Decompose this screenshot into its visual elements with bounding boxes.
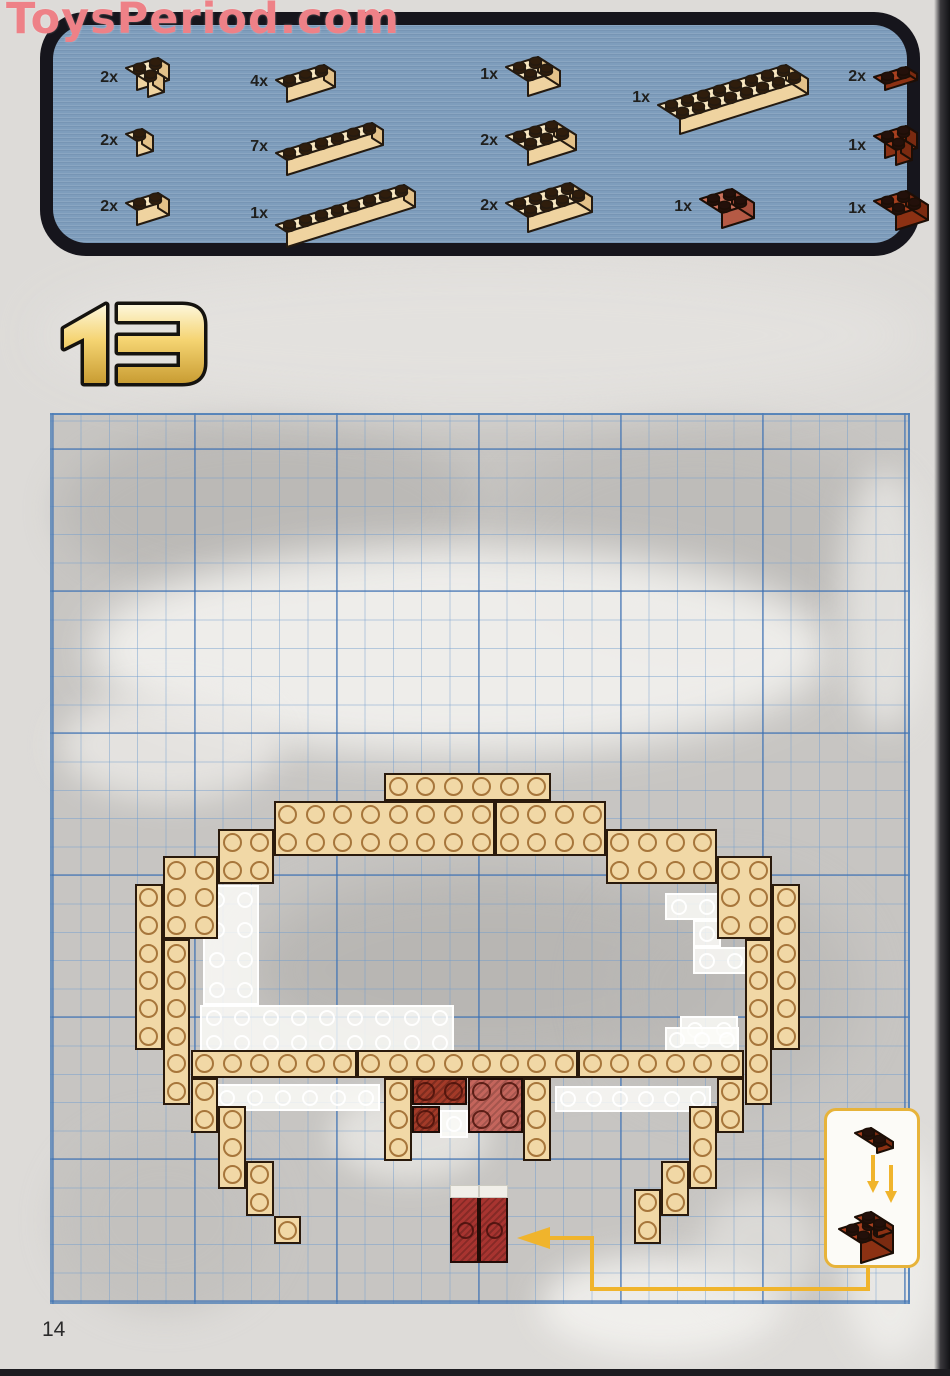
- stud: [263, 1010, 279, 1026]
- stud: [167, 1027, 186, 1046]
- red-plate-side-view: [479, 1196, 508, 1263]
- stud: [693, 1165, 712, 1184]
- part-item-brick-2x2-redbrown: 1x: [836, 182, 933, 235]
- stud: [319, 1010, 335, 1026]
- stud: [560, 1091, 576, 1107]
- stud: [250, 1165, 269, 1184]
- stud: [237, 922, 253, 938]
- stud: [250, 1054, 269, 1073]
- tan-brick-1x2: [246, 1161, 274, 1216]
- stud: [291, 1010, 307, 1026]
- stud: [527, 777, 546, 796]
- tan-brick-2x3: [717, 856, 772, 939]
- stud: [139, 888, 158, 907]
- part-brick-drawing: [123, 184, 174, 230]
- step-number-glyphs: [42, 298, 214, 398]
- part-qty-label: 1x: [620, 89, 650, 107]
- stud: [223, 861, 242, 880]
- stud: [527, 805, 546, 824]
- stud: [195, 916, 214, 935]
- stud: [693, 1138, 712, 1157]
- stud: [749, 1082, 768, 1101]
- stud: [219, 1090, 235, 1106]
- stud: [586, 1091, 602, 1107]
- tan-brick-2x3: [163, 856, 218, 939]
- stud: [555, 805, 574, 824]
- stud: [167, 861, 186, 880]
- stud: [444, 1054, 463, 1073]
- stud: [610, 833, 629, 852]
- stud: [486, 1222, 503, 1239]
- stud: [389, 833, 408, 852]
- part-brick-drawing: [871, 58, 922, 95]
- stud: [721, 1082, 740, 1101]
- stud: [167, 888, 186, 907]
- part-item-brick-2x8-tan: 1x: [620, 56, 813, 139]
- stud: [693, 861, 712, 880]
- part-brick-drawing: [123, 50, 183, 106]
- stud: [472, 1110, 491, 1129]
- stud: [167, 999, 186, 1018]
- stud: [167, 971, 186, 990]
- ghost-brick: [200, 1005, 454, 1055]
- tan-brick-2x2: [218, 829, 273, 884]
- stud: [389, 1110, 408, 1129]
- stud: [291, 1035, 307, 1051]
- plate-top-face: [450, 1185, 479, 1198]
- stud: [234, 1010, 250, 1026]
- stud: [237, 952, 253, 968]
- part-brick-drawing: [503, 48, 565, 101]
- part-item-brick-2x4-tan: 2x: [468, 174, 597, 237]
- stud: [749, 999, 768, 1018]
- stud: [167, 944, 186, 963]
- stud: [250, 861, 269, 880]
- stud: [206, 1010, 222, 1026]
- tan-brick-1x2: [661, 1161, 689, 1216]
- tan-brick-1x2: [717, 1078, 745, 1133]
- stud: [500, 1110, 519, 1129]
- stud: [555, 833, 574, 852]
- callout-assembly-drawing: [827, 1111, 917, 1265]
- stud: [223, 833, 242, 852]
- part-brick-drawing: [273, 176, 420, 252]
- tan-brick-6x1: [384, 773, 550, 801]
- plate-top-face: [479, 1185, 508, 1198]
- stud: [416, 833, 435, 852]
- part-item-brick-2x2-corner-redbrown: 1x: [836, 118, 931, 174]
- stud: [500, 833, 519, 852]
- stud: [583, 1054, 602, 1073]
- stud: [777, 1027, 796, 1046]
- stud: [167, 916, 186, 935]
- page-number: 14: [42, 1318, 65, 1342]
- stud: [416, 805, 435, 824]
- part-qty-label: 1x: [836, 200, 866, 218]
- stud: [721, 916, 740, 935]
- stud: [139, 944, 158, 963]
- part-brick-drawing: [123, 120, 158, 161]
- stud: [209, 982, 225, 998]
- part-qty-label: 2x: [468, 197, 498, 215]
- part-qty-label: 7x: [238, 138, 268, 156]
- stud: [727, 953, 743, 969]
- stud: [250, 833, 269, 852]
- part-qty-label: 1x: [662, 198, 692, 216]
- stud: [500, 1082, 519, 1101]
- stud: [330, 1090, 346, 1106]
- stud: [472, 777, 491, 796]
- part-qty-label: 4x: [238, 73, 268, 91]
- stud: [319, 1035, 335, 1051]
- stud: [699, 953, 715, 969]
- stud: [612, 1091, 628, 1107]
- stud: [195, 861, 214, 880]
- tan-brick-4x2: [495, 801, 606, 856]
- part-brick-drawing: [273, 114, 388, 180]
- page-scan-edge-right: [934, 0, 950, 1376]
- part-item-brick-1x3-tan: 4x: [238, 56, 340, 107]
- stud: [167, 1054, 186, 1073]
- part-qty-label: 2x: [88, 198, 118, 216]
- part-brick-drawing: [871, 118, 931, 174]
- stud: [278, 833, 297, 852]
- part-qty-label: 2x: [836, 68, 866, 86]
- stud: [278, 1221, 297, 1240]
- stud: [333, 1054, 352, 1073]
- stud: [263, 1035, 279, 1051]
- stud: [555, 1054, 574, 1073]
- stud: [638, 1221, 657, 1240]
- stud: [666, 1193, 685, 1212]
- tan-brick-1x3: [523, 1078, 551, 1161]
- stud: [721, 888, 740, 907]
- page-scan-edge-bottom: [0, 1369, 950, 1376]
- ghost-brick: [440, 1110, 468, 1138]
- stud: [749, 971, 768, 990]
- stud: [500, 805, 519, 824]
- stud: [223, 1165, 242, 1184]
- stud: [223, 1110, 242, 1129]
- part-qty-label: 1x: [836, 137, 866, 155]
- stud: [749, 1027, 768, 1046]
- stud: [721, 1054, 740, 1073]
- stud: [699, 899, 715, 915]
- stud: [389, 1054, 408, 1073]
- stud: [527, 1054, 546, 1073]
- stud: [721, 1110, 740, 1129]
- stud: [404, 1035, 420, 1051]
- part-qty-label: 2x: [88, 132, 118, 150]
- stud: [416, 777, 435, 796]
- stud: [361, 833, 380, 852]
- part-brick-drawing: [503, 112, 581, 170]
- stud: [444, 777, 463, 796]
- stud: [638, 1054, 657, 1073]
- step-number: 13: [42, 298, 214, 403]
- stud: [389, 1138, 408, 1157]
- stud: [527, 1082, 546, 1101]
- stud: [195, 888, 214, 907]
- tan-brick-8x1: [357, 1050, 579, 1078]
- stud: [223, 1054, 242, 1073]
- ghost-brick: [665, 1027, 739, 1053]
- stud: [306, 833, 325, 852]
- stud: [302, 1090, 318, 1106]
- stud: [444, 1082, 463, 1101]
- stud: [278, 805, 297, 824]
- red-corner-brick: [412, 1106, 440, 1134]
- red-corner-brick: [412, 1078, 467, 1106]
- red-2x2-brick: [468, 1078, 523, 1133]
- stud: [693, 833, 712, 852]
- ghost-brick: [693, 947, 749, 974]
- stud: [195, 1082, 214, 1101]
- part-qty-label: 2x: [88, 69, 118, 87]
- part-item-brick-2x2-tan: 1x: [468, 48, 565, 101]
- stud: [139, 916, 158, 935]
- stud: [167, 1082, 186, 1101]
- part-brick-drawing: [503, 174, 597, 237]
- stud: [638, 861, 657, 880]
- stud: [195, 1054, 214, 1073]
- part-item-brick-1x6-tan: 7x: [238, 114, 388, 180]
- part-item-brick-1x1-tan: 2x: [88, 120, 158, 161]
- stud: [693, 1110, 712, 1129]
- stud: [275, 1090, 291, 1106]
- stud: [500, 777, 519, 796]
- stud: [444, 805, 463, 824]
- tan-brick-1x3: [384, 1078, 412, 1161]
- stud: [777, 999, 796, 1018]
- stud: [472, 805, 491, 824]
- part-qty-label: 2x: [468, 132, 498, 150]
- stud: [669, 1032, 685, 1048]
- stud: [234, 1035, 250, 1051]
- stud: [666, 1054, 685, 1073]
- tan-brick-8x2: [274, 801, 496, 856]
- stud: [333, 805, 352, 824]
- stud: [389, 805, 408, 824]
- tan-brick-6x1: [578, 1050, 744, 1078]
- stud: [749, 888, 768, 907]
- stud: [237, 892, 253, 908]
- stud: [444, 833, 463, 852]
- stud: [416, 1082, 435, 1101]
- stud: [139, 971, 158, 990]
- stud: [375, 1010, 391, 1026]
- part-brick-drawing: [273, 56, 340, 107]
- stud: [693, 1054, 712, 1073]
- stud: [457, 1222, 474, 1239]
- part-qty-label: 1x: [238, 205, 268, 223]
- part-item-brick-2x2-salmon: 1x: [662, 180, 759, 233]
- stud: [250, 1193, 269, 1212]
- tan-brick-4x2: [606, 829, 717, 884]
- red-plate-side-view: [450, 1196, 479, 1263]
- stud: [638, 833, 657, 852]
- stud: [777, 888, 796, 907]
- ghost-brick: [665, 893, 721, 920]
- stud: [749, 861, 768, 880]
- stud: [446, 1116, 462, 1132]
- callout-box: [824, 1108, 920, 1268]
- stud: [237, 982, 253, 998]
- stud: [139, 999, 158, 1018]
- stud: [347, 1010, 363, 1026]
- watermark: ToysPeriod.com: [6, 0, 400, 44]
- stud: [306, 1054, 325, 1073]
- stud: [472, 1054, 491, 1073]
- stud: [721, 861, 740, 880]
- stud: [777, 916, 796, 935]
- stud: [749, 916, 768, 935]
- part-qty-label: 1x: [468, 66, 498, 84]
- stud: [527, 833, 546, 852]
- stud: [361, 805, 380, 824]
- tan-brick-1x1: [274, 1216, 302, 1244]
- stud: [206, 1035, 222, 1051]
- ghost-brick: [555, 1086, 711, 1112]
- stud: [671, 899, 687, 915]
- stud: [306, 805, 325, 824]
- tan-brick-1x6: [163, 939, 191, 1105]
- stud: [209, 952, 225, 968]
- tan-brick-1x6: [772, 884, 800, 1050]
- tan-brick-1x6: [745, 939, 773, 1105]
- stud: [432, 1010, 448, 1026]
- part-item-brick-1x8-tan: 1x: [238, 176, 420, 252]
- stud: [777, 944, 796, 963]
- stud: [416, 1054, 435, 1073]
- stud: [404, 1010, 420, 1026]
- stud: [666, 1165, 685, 1184]
- stud: [694, 1032, 710, 1048]
- part-item-brick-2x3-tan: 2x: [468, 112, 581, 170]
- stud: [432, 1035, 448, 1051]
- part-brick-drawing: [871, 182, 933, 235]
- stud: [223, 1138, 242, 1157]
- stud: [749, 944, 768, 963]
- stud: [749, 1054, 768, 1073]
- stud: [347, 1035, 363, 1051]
- stud: [139, 1027, 158, 1046]
- stud: [719, 1032, 735, 1048]
- tan-brick-1x2: [191, 1078, 219, 1133]
- stud: [583, 805, 602, 824]
- part-brick-drawing: [697, 180, 759, 233]
- stud: [699, 926, 715, 942]
- stud: [666, 833, 685, 852]
- stud: [472, 1082, 491, 1101]
- tan-brick-1x2: [634, 1189, 662, 1244]
- stud: [666, 861, 685, 880]
- stud: [638, 1193, 657, 1212]
- stud: [472, 833, 491, 852]
- tan-brick-6x1: [191, 1050, 357, 1078]
- tan-brick-1x3: [689, 1106, 717, 1189]
- stud: [664, 1091, 680, 1107]
- stud: [583, 833, 602, 852]
- stud: [361, 1054, 380, 1073]
- stud: [278, 1054, 297, 1073]
- part-item-brick-2x2-corner-tan: 2x: [88, 50, 183, 106]
- stud: [416, 1110, 435, 1129]
- stud: [527, 1138, 546, 1157]
- part-item-plate-1x2-redbrown: 2x: [836, 58, 922, 95]
- stud: [389, 777, 408, 796]
- stud: [333, 833, 352, 852]
- tan-brick-1x3: [218, 1106, 246, 1189]
- stud: [777, 971, 796, 990]
- stud: [389, 1082, 408, 1101]
- stud: [247, 1090, 263, 1106]
- manual-page: 2x2x2x4x7x1x1x2x2x1x1x2x1x1x ToysPeriod.…: [0, 0, 950, 1376]
- part-brick-drawing: [655, 56, 813, 139]
- stud: [500, 1054, 519, 1073]
- stud: [358, 1090, 374, 1106]
- stud: [527, 1110, 546, 1129]
- part-item-brick-1x2-tan: 2x: [88, 184, 174, 230]
- stud: [375, 1035, 391, 1051]
- stud: [610, 1054, 629, 1073]
- stud: [638, 1091, 654, 1107]
- stud: [610, 861, 629, 880]
- stud: [195, 1110, 214, 1129]
- tan-brick-1x6: [135, 884, 163, 1050]
